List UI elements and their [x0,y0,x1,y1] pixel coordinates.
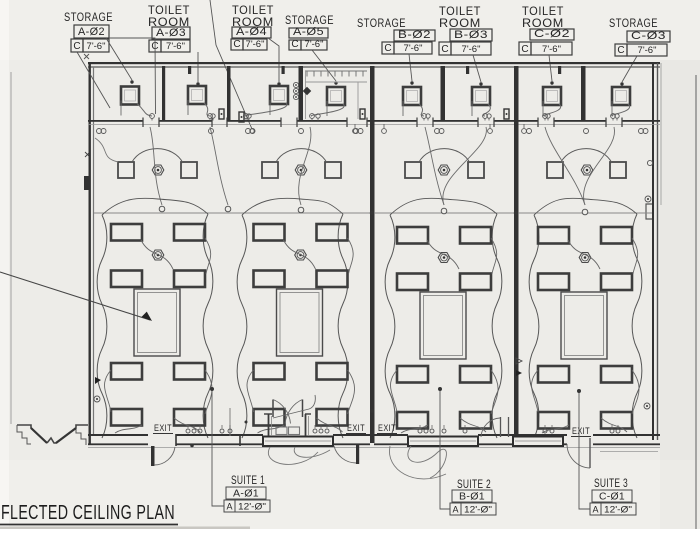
svg-text:7'-6": 7'-6" [462,44,481,55]
svg-text:12'-Ø": 12'-Ø" [604,505,632,515]
svg-text:SUITE 3: SUITE 3 [594,476,628,490]
svg-text:TOILET: TOILET [522,6,564,18]
svg-text:TOILET: TOILET [439,6,481,18]
svg-text:FLECTED CEILING PLAN: FLECTED CEILING PLAN [1,502,175,524]
svg-text:7'-6": 7'-6" [542,44,561,55]
svg-text:C-Ø2: C-Ø2 [534,28,570,40]
svg-text:A: A [452,505,458,515]
svg-text:A-Ø3: A-Ø3 [156,27,186,39]
svg-text:C: C [291,39,298,50]
svg-text:7'-6": 7'-6" [166,41,185,52]
svg-text:STORAGE: STORAGE [64,12,113,24]
svg-text:C: C [384,43,391,54]
svg-text:C: C [233,39,240,50]
svg-text:TOILET: TOILET [148,5,190,17]
svg-text:B-Ø2: B-Ø2 [398,29,431,41]
svg-text:C: C [617,45,624,56]
svg-text:C-Ø1: C-Ø1 [599,491,625,503]
svg-text:C-Ø3: C-Ø3 [631,30,666,42]
svg-text:C: C [521,44,528,55]
svg-text:7'-6": 7'-6" [404,43,423,54]
svg-text:C: C [73,41,80,52]
svg-text:7'-6": 7'-6" [638,45,657,56]
svg-text:SUITE 1: SUITE 1 [231,473,265,487]
svg-text:7'-6": 7'-6" [87,41,106,52]
svg-text:A: A [592,505,598,515]
svg-text:A-Ø2: A-Ø2 [78,26,105,38]
svg-text:12'-Ø": 12'-Ø" [464,505,492,515]
svg-text:SUITE 2: SUITE 2 [457,477,491,491]
svg-text:7'-6": 7'-6" [246,39,265,50]
svg-text:B-Ø1: B-Ø1 [459,491,485,503]
svg-text:A-Ø4: A-Ø4 [236,26,267,38]
svg-text:A-Ø5: A-Ø5 [293,26,324,38]
svg-text:TOILET: TOILET [232,5,274,17]
svg-text:C: C [441,44,448,55]
svg-text:7'-6": 7'-6" [305,39,324,50]
svg-text:A-Ø1: A-Ø1 [233,488,259,500]
svg-text:A: A [226,502,232,512]
svg-text:12'-Ø": 12'-Ø" [238,502,266,512]
svg-text:STORAGE: STORAGE [609,18,658,30]
svg-text:B-Ø3: B-Ø3 [454,29,488,41]
